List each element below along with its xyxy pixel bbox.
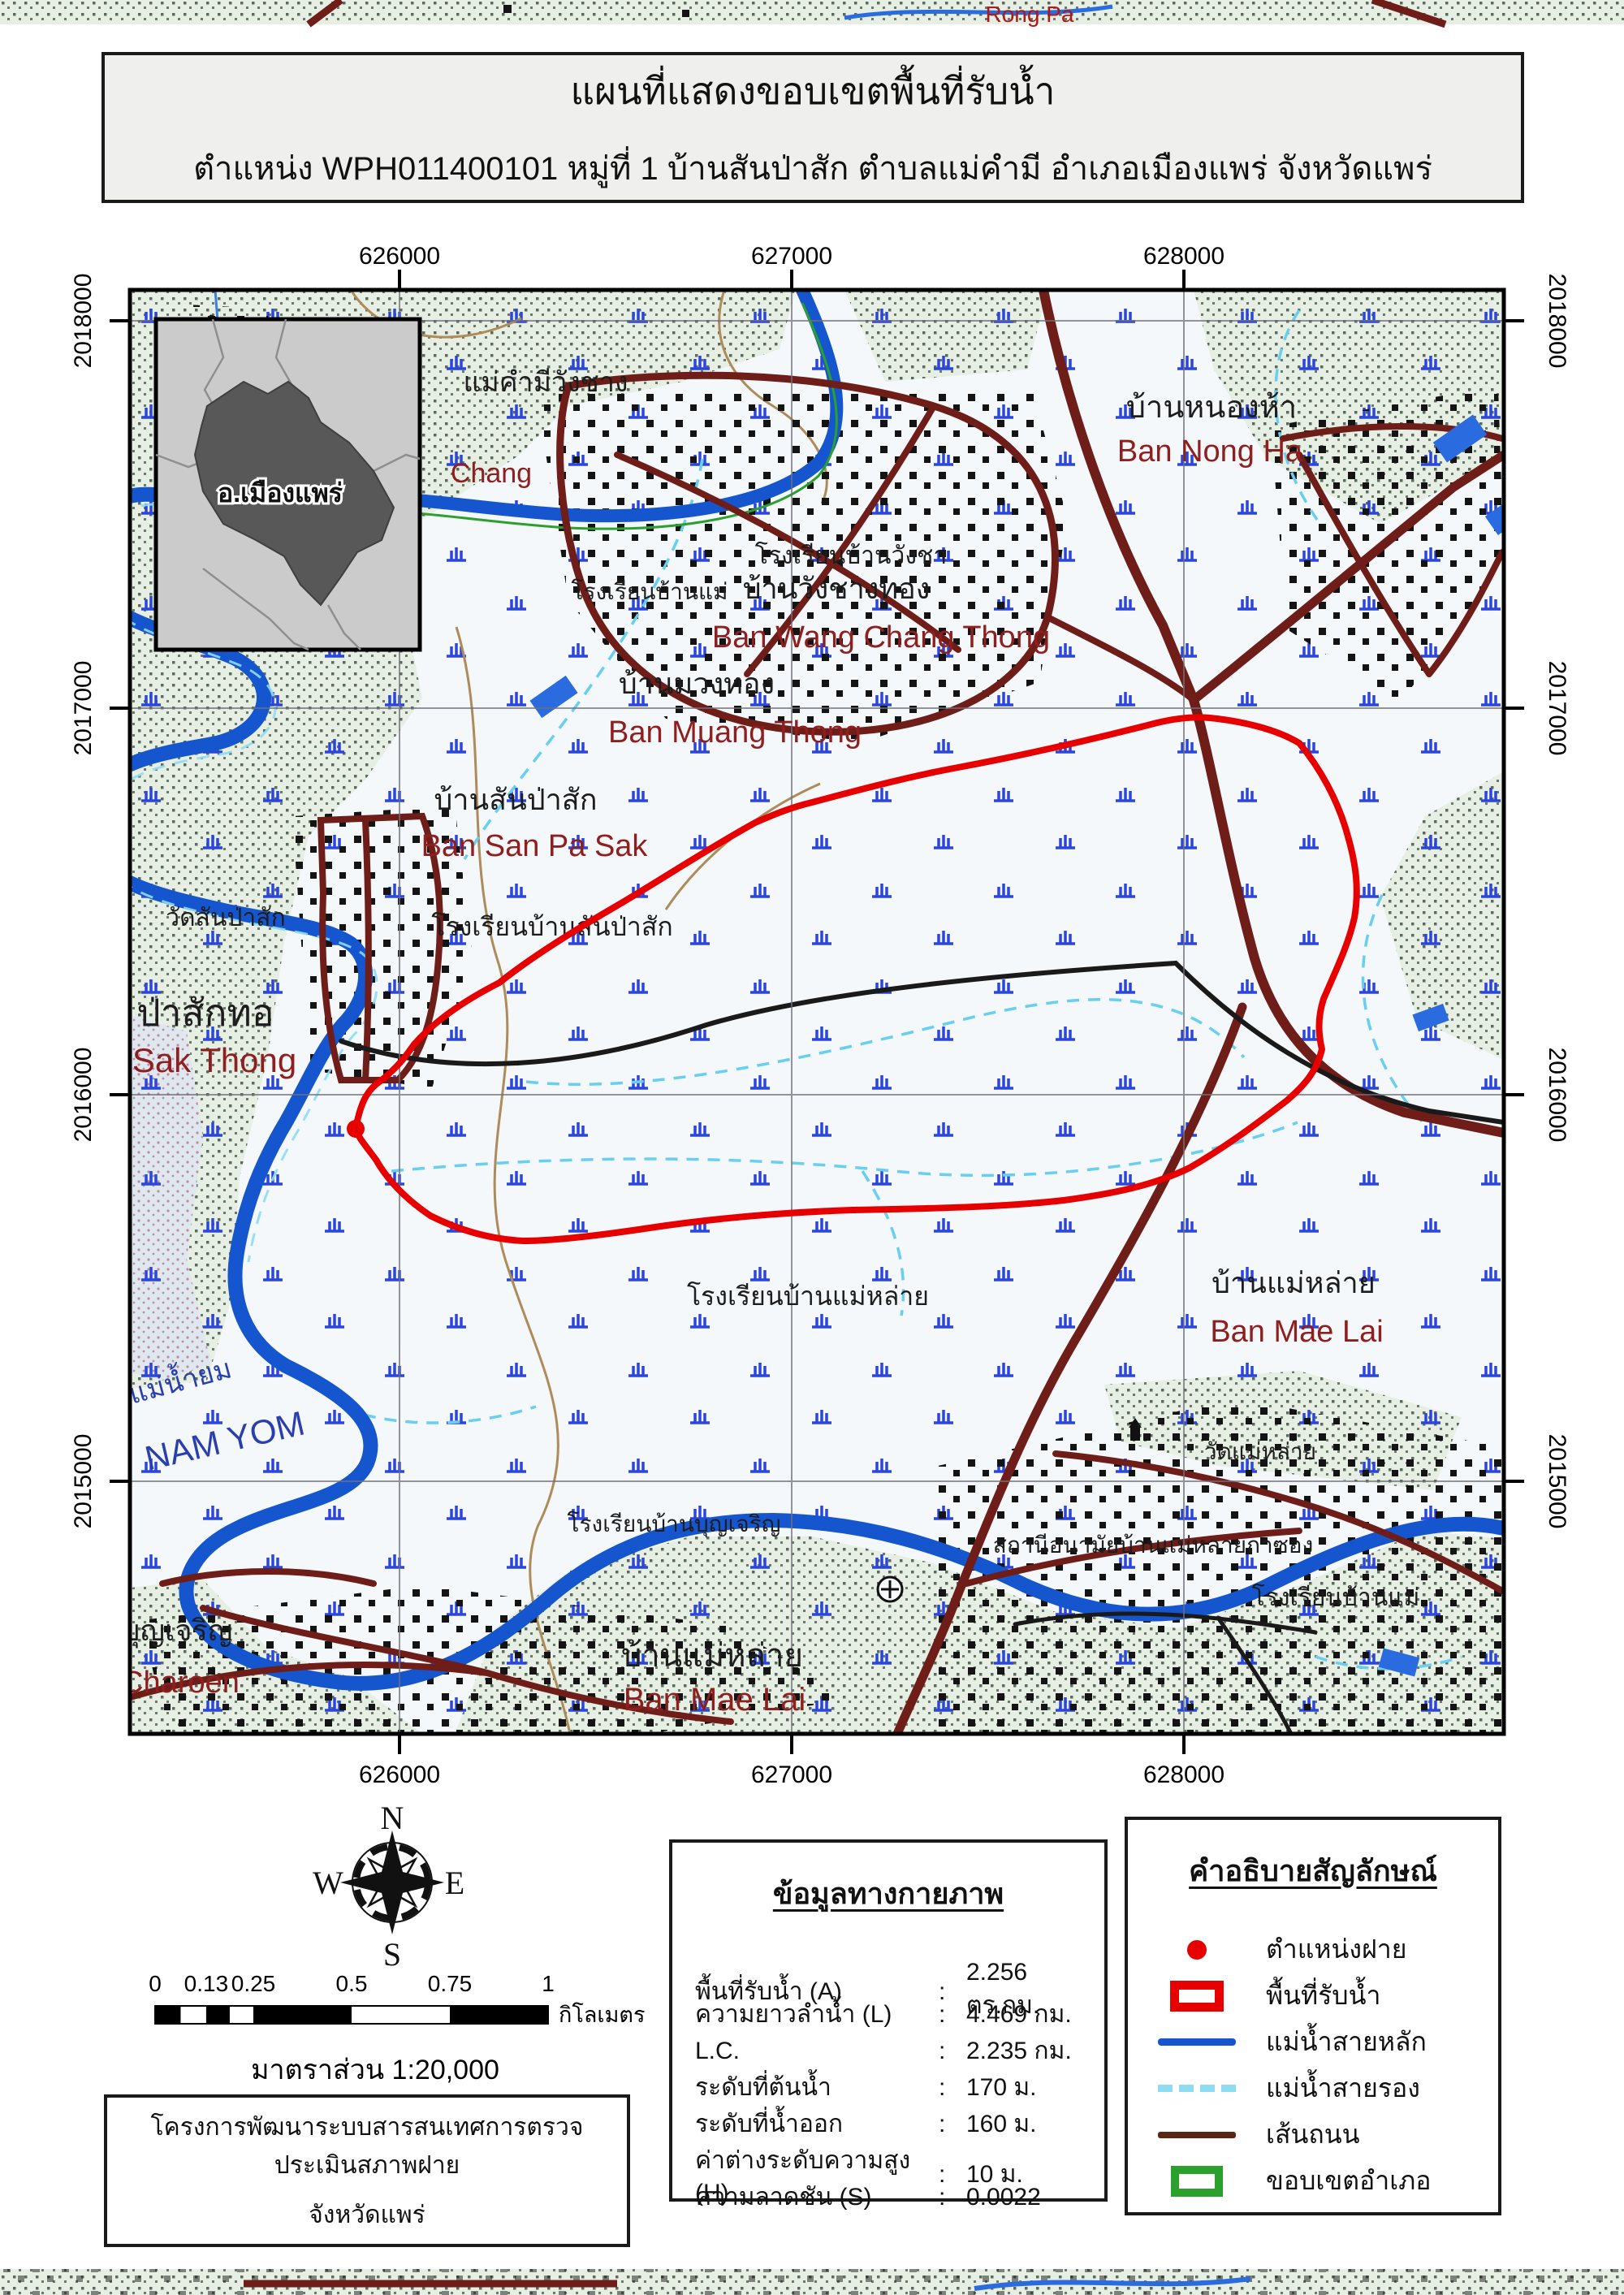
scale-unit-label: กิโลเมตร	[559, 2003, 645, 2027]
rect-symbol-icon	[1128, 1981, 1266, 2012]
legend-item-label: ตำแหน่งฝาย	[1266, 1929, 1406, 1970]
scalebar-tick-label: 0.13	[184, 1971, 229, 1996]
data-row-value: 2.235 กม.	[966, 2032, 1104, 2070]
y-axis-label: 2015000	[70, 1434, 97, 1529]
map-label: Ban San Pa Sak	[421, 829, 649, 863]
legend-item-label: ขอบเขตอำเภอ	[1266, 2160, 1431, 2202]
title-box: แผนที่แสดงขอบเขตพื้นที่รับน้ำ ตำแหน่ง WP…	[101, 52, 1524, 203]
data-row-value: 170 ม.	[966, 2068, 1104, 2107]
legend-rows: ตำแหน่งฝายพื้นที่รับน้ำแม่น้ำสายหลักแม่น…	[1128, 1926, 1498, 2204]
map-label: โรงเรียนบ้านแม่	[1252, 1583, 1420, 1611]
scalebar-segment	[253, 2006, 352, 2024]
data-row-colon: :	[939, 2074, 966, 2102]
y-axis-label: 2018000	[1544, 274, 1570, 369]
dash-symbol-icon	[1128, 2085, 1266, 2092]
physical-data-row: ความยาวลำน้ำ (L):4.469 กม.	[695, 1995, 1104, 2032]
line-symbol-icon	[1128, 2038, 1266, 2046]
scale-ratio-text: มาตราส่วน 1:20,000	[251, 2055, 499, 2085]
physical-data-row: พื้นที่รับน้ำ (A):2.256 ตร.กม.	[695, 1959, 1104, 1995]
x-axis-label: 628000	[1143, 1761, 1224, 1788]
dot-symbol-icon	[1128, 1940, 1266, 1960]
map-label: บ้านหนองห้า	[1126, 391, 1297, 425]
x-axis-label: 627000	[751, 1761, 832, 1788]
map-label: Chang	[451, 458, 532, 489]
data-row-value: 160 ม.	[966, 2105, 1104, 2143]
map-label: สถานีอนามัยบ้านแม่หลายกาซอง	[993, 1532, 1314, 1558]
physical-data-box: ข้อมูลทางกายภาพ พื้นที่รับน้ำ (A):2.256 …	[669, 1839, 1108, 2202]
physical-data-row: ระดับที่ต้นน้ำ:170 ม.	[695, 2068, 1104, 2105]
data-row-label: ระดับที่ต้นน้ำ	[695, 2068, 939, 2107]
scalebar-tick-label: 1	[542, 1971, 555, 1996]
map-label: โรงเรียนบ้านสันป่าสัก	[431, 912, 673, 941]
inset-district-label: อ.เมืองแพร่	[218, 478, 343, 508]
bottom-map-strip	[0, 2269, 1624, 2295]
map-label: บ้านแม่หล่าย	[621, 1638, 803, 1674]
map-label: แม่คำมีวังชาง	[463, 367, 628, 398]
map-label: Sak Thong	[132, 1041, 296, 1079]
base-map: แม่คำมีวังชางChangบ้านหนองห้าBan Nong Ha…	[83, 290, 1535, 1734]
physical-data-row: ระดับที่น้ำออก:160 ม.	[695, 2105, 1104, 2142]
legend-item-rect: พื้นที่รับน้ำ	[1128, 1973, 1498, 2019]
map-title: แผนที่แสดงขอบเขตพื้นที่รับน้ำ	[570, 62, 1055, 121]
scalebar-segment	[206, 2006, 230, 2024]
map-label: วัดแม่หล่าย	[1204, 1439, 1316, 1464]
physical-data-row: ความลาดชัน (S):0.0022	[695, 2178, 1104, 2215]
map-label: โรงเรียนบ้านวังชา	[755, 541, 947, 569]
data-row-colon: :	[939, 2111, 966, 2138]
physical-data-row: L.C.:2.235 กม.	[695, 2032, 1104, 2068]
map-label: Ban Mae Lai	[1210, 1315, 1383, 1349]
data-row-label: ความยาวลำน้ำ (L)	[695, 1995, 939, 2034]
legend-box: คำอธิบายสัญลักษณ์ ตำแหน่งฝายพื้นที่รับน้…	[1125, 1817, 1501, 2215]
legend-item-label: แม่น้ำสายรอง	[1266, 2068, 1420, 2109]
weir-position-dot	[347, 1120, 365, 1138]
map-label: บ้านมวงทอง	[619, 667, 775, 700]
map-subtitle: ตำแหน่ง WPH011400101 หมู่ที่ 1 บ้านสันป่…	[193, 142, 1432, 194]
map-sheet-page: Rong Pa	[0, 0, 1624, 2295]
y-axis-label: 2017000	[70, 661, 97, 756]
data-row-colon: :	[939, 2184, 966, 2211]
x-axis-label: 626000	[359, 243, 440, 270]
map-label: Ban Nong Ha	[1117, 434, 1303, 469]
map-label: บ้านแม่หล่าย	[1212, 1266, 1376, 1299]
data-row-label: ความลาดชัน (S)	[695, 2178, 939, 2216]
scale-bar: 00.130.250.50.751 กิโลเมตร มาตราส่วน 1:2…	[149, 1971, 645, 2085]
map-label: โรงเรียนบ้านแม่	[571, 578, 728, 604]
y-axis-label: 2016000	[70, 1048, 97, 1143]
compass-n: N	[381, 1800, 404, 1836]
map-label: โรงเรียนบ้านบุญเจริญ	[567, 1511, 780, 1538]
legend-title: คำอธิบายสัญลักษณ์	[1128, 1848, 1498, 1894]
legend-item-grect: ขอบเขตอำเภอ	[1128, 2158, 1498, 2204]
scalebar-tick-label: 0.25	[231, 1971, 276, 1996]
map-label: บ้านวังชางทอง	[743, 572, 931, 605]
compass-s: S	[383, 1936, 401, 1973]
scalebar-tick-label: 0	[149, 1971, 162, 1996]
inset-map: อ.เมืองแพร่	[156, 319, 420, 650]
project-line2: จังหวัดแพร่	[122, 2196, 612, 2234]
legend-item-label: แม่น้ำสายหลัก	[1266, 2021, 1427, 2063]
data-row-value: 0.0022	[966, 2184, 1104, 2211]
compass-e: E	[445, 1865, 464, 1901]
data-row-label: L.C.	[695, 2038, 939, 2065]
map-label: Charoen	[121, 1666, 240, 1700]
data-row-label: ระดับที่น้ำออก	[695, 2105, 939, 2143]
x-axis-label: 628000	[1143, 243, 1224, 270]
y-axis-label: 2015000	[1544, 1434, 1570, 1529]
road-symbol-icon	[1128, 2132, 1266, 2138]
map-label: บ้านสันป่าสัก	[434, 783, 597, 816]
project-line1: โครงการพัฒนาระบบสารสนเทศการตรวจประเมินสภ…	[122, 2108, 612, 2185]
physical-data-row: ค่าต่างระดับความสูง (H):10 ม.	[695, 2142, 1104, 2178]
strip-label-rong-pa: Rong Pa	[986, 2, 1074, 27]
grect-symbol-icon	[1128, 2166, 1266, 2197]
legend-item-dot: ตำแหน่งฝาย	[1128, 1926, 1498, 1973]
legend-item-label: พื้นที่รับน้ำ	[1266, 1975, 1380, 2016]
data-row-colon: :	[939, 2038, 966, 2065]
x-axis-label: 626000	[359, 1761, 440, 1788]
map-label: Ban Muang Thong	[608, 715, 862, 750]
legend-item-line: แม่น้ำสายหลัก	[1128, 2019, 1498, 2065]
legend-item-dash: แม่น้ำสายรอง	[1128, 2065, 1498, 2111]
hospital-symbol	[878, 1577, 902, 1601]
data-row-colon: :	[939, 2001, 966, 2029]
scalebar-tick-label: 0.75	[428, 1971, 473, 1996]
compass-rose: N S W E	[313, 1800, 464, 1973]
compass-w: W	[313, 1865, 343, 1901]
y-axis-label: 2018000	[70, 274, 97, 369]
project-box: โครงการพัฒนาระบบสารสนเทศการตรวจประเมินสภ…	[104, 2094, 630, 2247]
map-label: Ban Wang Chang Thong	[712, 620, 1050, 655]
scalebar-segment	[450, 2006, 548, 2024]
scalebar-tick-label: 0.5	[336, 1971, 368, 1996]
y-axis-label: 2017000	[1544, 661, 1570, 756]
map-label: โรงเรียนบ้านแม่หล่าย	[687, 1281, 929, 1311]
legend-item-road: เส้นถนน	[1128, 2111, 1498, 2158]
scalebar-segment	[155, 2006, 180, 2024]
map-label: Ban Mae Lai	[624, 1682, 806, 1718]
physical-data-rows: พื้นที่รับน้ำ (A):2.256 ตร.กม.ความยาวลำน…	[695, 1959, 1104, 2215]
legend-item-label: เส้นถนน	[1266, 2114, 1359, 2155]
map-label: ป่าสักทอ	[137, 992, 274, 1034]
data-row-value: 4.469 กม.	[966, 1995, 1104, 2034]
physical-data-title: ข้อมูลทางกายภาพ	[672, 1870, 1104, 1917]
x-axis-label: 627000	[751, 243, 832, 270]
y-axis-label: 2016000	[1544, 1048, 1570, 1143]
map-label: วัดสันป่าสัก	[166, 905, 286, 931]
map-label: บุญเจริญ	[122, 1614, 233, 1649]
top-map-strip: Rong Pa	[0, 0, 1624, 27]
